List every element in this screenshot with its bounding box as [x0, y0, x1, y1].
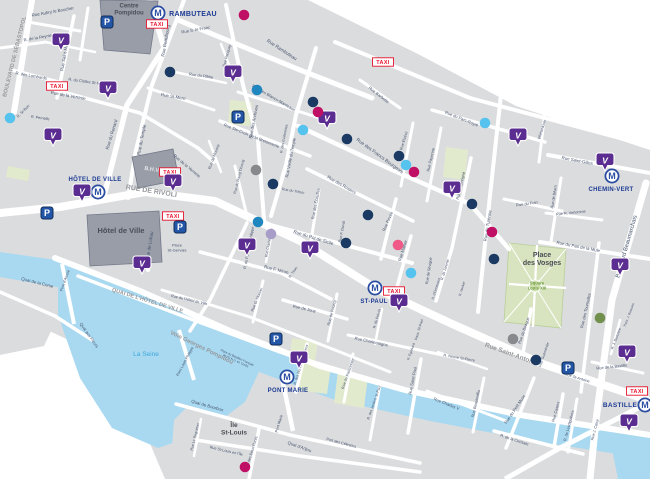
- parking-icon[interactable]: P: [101, 16, 113, 28]
- poi-dot-lavender[interactable]: [266, 229, 277, 240]
- svg-text:M: M: [371, 283, 379, 293]
- metro-station-label: RAMBUTEAU: [169, 11, 217, 18]
- svg-text:TAXI: TAXI: [50, 84, 64, 90]
- svg-text:P: P: [273, 334, 279, 344]
- svg-text:P: P: [235, 112, 241, 122]
- parking-icon[interactable]: P: [562, 362, 574, 374]
- parking-icon[interactable]: P: [232, 111, 244, 123]
- poi-dot-navy[interactable]: [363, 210, 374, 221]
- poi-dot-sky[interactable]: [480, 118, 491, 129]
- paris-map: CentrePompidouHôtel de VilleB.H.V.Placed…: [0, 0, 650, 479]
- svg-text:P: P: [177, 222, 183, 232]
- svg-text:P: P: [44, 208, 50, 218]
- svg-text:TAXI: TAXI: [150, 22, 164, 28]
- poi-dot-olive[interactable]: [595, 313, 606, 324]
- metro-station-label: HÔTEL DE VILLE: [68, 175, 121, 183]
- svg-text:M: M: [283, 372, 291, 382]
- poi-dot-navy[interactable]: [268, 179, 279, 190]
- poi-dot-navy[interactable]: [308, 97, 319, 108]
- poi-dot-sky[interactable]: [406, 268, 417, 279]
- street-label: SquareLouis XIII: [528, 281, 547, 291]
- metro-icon[interactable]: M: [151, 6, 164, 19]
- poi-dot-magenta[interactable]: [240, 462, 251, 473]
- svg-text:M: M: [608, 171, 616, 181]
- poi-dot-gray[interactable]: [508, 334, 519, 345]
- metro-station-label: ST-PAUL: [360, 299, 387, 305]
- svg-text:TAXI: TAXI: [630, 389, 644, 395]
- taxi-badge[interactable]: TAXI: [627, 387, 648, 395]
- poi-dot-magenta[interactable]: [313, 107, 324, 118]
- metro-station-label: CHEMIN-VERT: [589, 187, 634, 193]
- taxi-badge[interactable]: TAXI: [47, 82, 68, 90]
- svg-text:P: P: [565, 363, 571, 373]
- parking-icon[interactable]: P: [270, 333, 282, 345]
- poi-dot-blue[interactable]: [252, 85, 263, 96]
- metro-icon[interactable]: M: [638, 398, 650, 411]
- map-container: CentrePompidouHôtel de VilleB.H.V.Placed…: [0, 0, 650, 479]
- poi-dot-navy[interactable]: [342, 134, 353, 145]
- poi-dot-magenta[interactable]: [409, 167, 420, 178]
- metro-icon[interactable]: M: [368, 281, 381, 294]
- street-label: La Seine: [133, 351, 159, 358]
- poi-dot-blue[interactable]: [253, 217, 264, 228]
- poi-dot-navy[interactable]: [165, 67, 176, 78]
- street-label: Hôtel de Ville: [98, 226, 145, 235]
- poi-dot-pink[interactable]: [393, 240, 404, 251]
- poi-dot-magenta[interactable]: [487, 227, 498, 238]
- poi-dot-navy[interactable]: [489, 254, 500, 265]
- parking-icon[interactable]: P: [174, 221, 186, 233]
- poi-dot-navy[interactable]: [531, 355, 542, 366]
- metro-icon[interactable]: M: [280, 370, 293, 383]
- svg-text:M: M: [154, 8, 162, 18]
- poi-dot-navy[interactable]: [341, 238, 352, 249]
- taxi-badge[interactable]: TAXI: [163, 212, 184, 220]
- metro-icon[interactable]: M: [91, 185, 104, 198]
- parking-icon[interactable]: P: [41, 207, 53, 219]
- metro-station-label: BASTILLE: [603, 402, 638, 409]
- poi-dot-navy[interactable]: [467, 199, 478, 210]
- poi-dot-sky[interactable]: [401, 160, 412, 171]
- taxi-badge[interactable]: TAXI: [147, 20, 168, 28]
- poi-dot-navy[interactable]: [394, 151, 405, 162]
- svg-text:P: P: [104, 17, 110, 27]
- metro-station-label: PONT MARIE: [268, 388, 309, 394]
- svg-text:TAXI: TAXI: [166, 214, 180, 220]
- svg-text:M: M: [94, 187, 102, 197]
- poi-dot-sky[interactable]: [298, 125, 309, 136]
- metro-icon[interactable]: M: [605, 169, 618, 182]
- poi-dot-sky[interactable]: [5, 113, 16, 124]
- svg-text:TAXI: TAXI: [376, 60, 390, 66]
- svg-text:M: M: [641, 400, 649, 410]
- poi-dot-gray[interactable]: [251, 165, 262, 176]
- poi-dot-magenta[interactable]: [239, 10, 250, 21]
- taxi-badge[interactable]: TAXI: [373, 58, 394, 66]
